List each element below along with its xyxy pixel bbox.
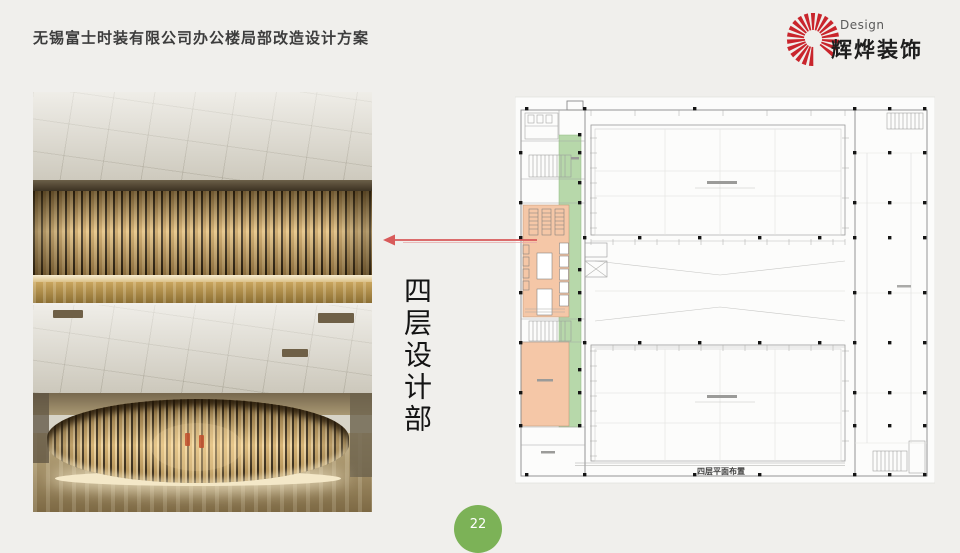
- photo2-ceiling-vent: [282, 349, 308, 357]
- photo2-garment: [199, 435, 204, 448]
- page-title: 无锡富士时装有限公司办公楼局部改造设计方案: [33, 27, 369, 48]
- photo2-left-wall: [33, 393, 49, 463]
- photo-slat-enclosure-room: [33, 305, 372, 512]
- photo1-ceiling: [33, 92, 372, 184]
- floor-plan: 四层平面布置: [515, 93, 935, 485]
- section-label-vertical: 四层设计部: [402, 276, 430, 436]
- photo2-garment: [185, 433, 190, 446]
- photo1-ceiling-beam: [33, 180, 372, 191]
- company-logo: Design 辉烨装饰: [786, 8, 946, 70]
- photo2-right-wall: [350, 393, 372, 477]
- photo2-ceiling-vent: [318, 313, 354, 323]
- plan-caption: 四层平面布置: [697, 466, 745, 476]
- logo-design-text: Design: [840, 18, 884, 32]
- left-arrow-icon: [383, 233, 539, 247]
- photo1-floor: [33, 282, 372, 303]
- logo-company-name: 辉烨装饰: [831, 34, 923, 64]
- photo1-wood-slats: [33, 191, 372, 275]
- photo2-interior-glow: [151, 423, 243, 471]
- plan-room-highlight-2: [521, 342, 569, 426]
- page-number: 22: [470, 517, 487, 532]
- photo2-ceiling-vent: [53, 310, 83, 318]
- page-number-badge: 22: [454, 505, 502, 553]
- photo1-floor-glow: [33, 275, 372, 282]
- photo-slat-partition-closeup: [33, 92, 372, 303]
